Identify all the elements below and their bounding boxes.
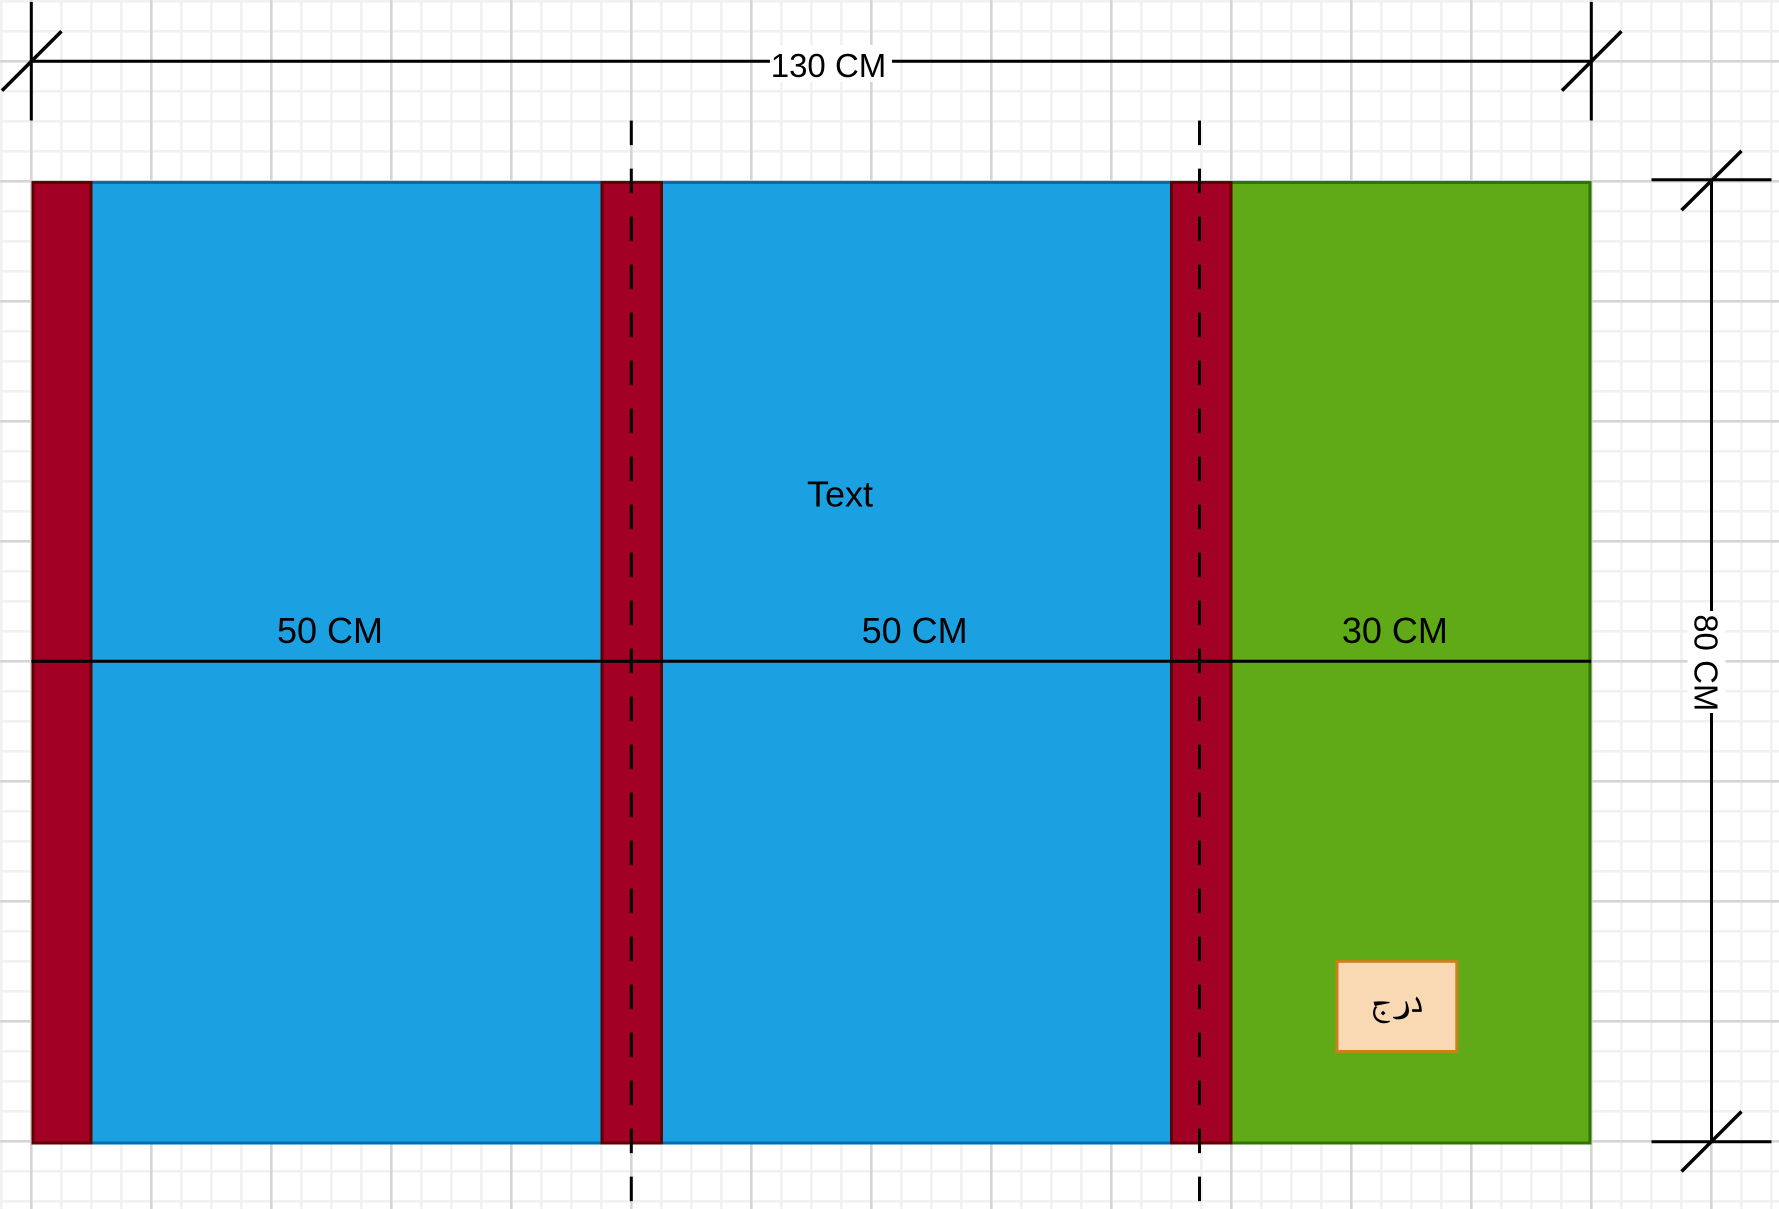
- svg-text:80 CM: 80 CM: [1688, 614, 1725, 711]
- svg-text:130 CM: 130 CM: [771, 47, 887, 84]
- svg-text:50 CM: 50 CM: [862, 610, 968, 651]
- svg-text:50 CM: 50 CM: [277, 610, 383, 651]
- svg-text:30 CM: 30 CM: [1342, 610, 1448, 651]
- svg-text:Text: Text: [807, 474, 873, 515]
